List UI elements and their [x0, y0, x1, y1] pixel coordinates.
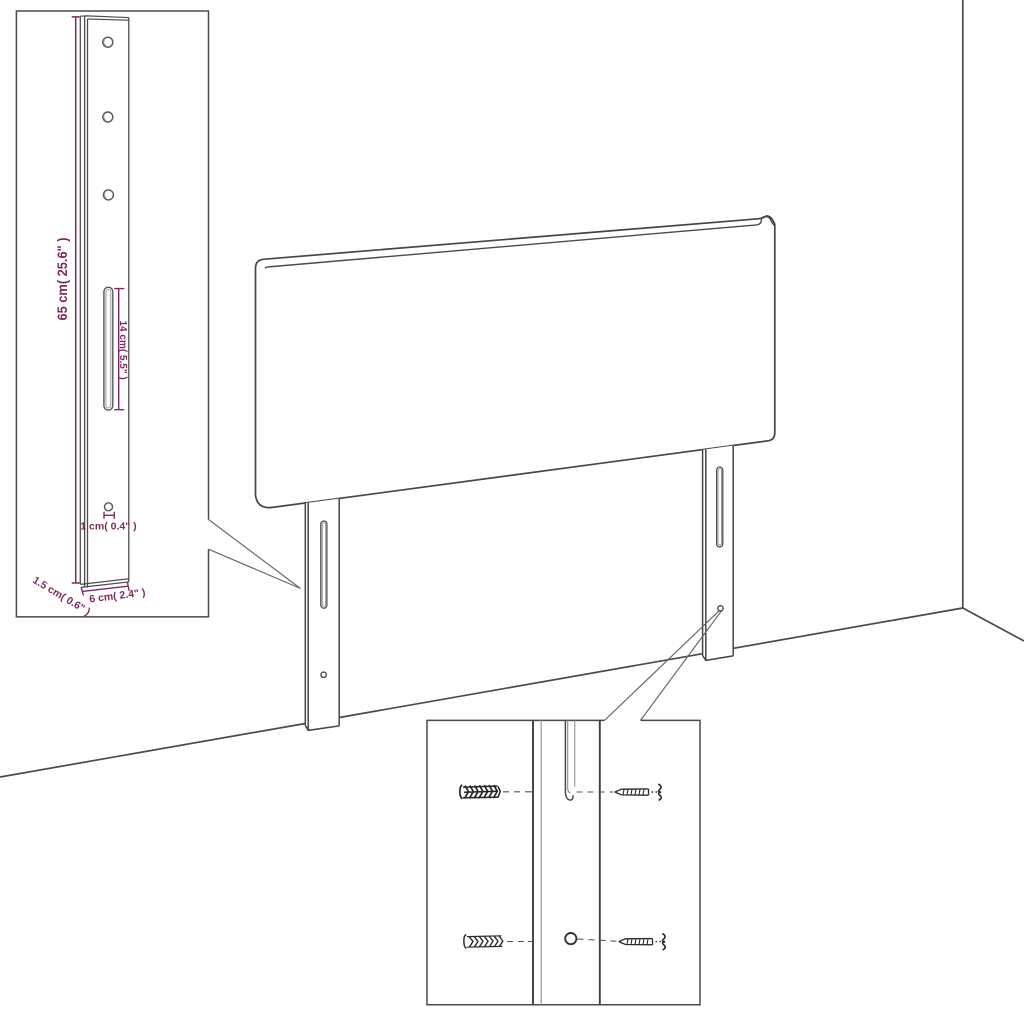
svg-text:14 cm( 5.5" ): 14 cm( 5.5" )	[117, 320, 128, 379]
svg-text:1 cm( 0.4" ): 1 cm( 0.4" )	[80, 521, 136, 533]
svg-text:65 cm( 25.6" ): 65 cm( 25.6" )	[54, 238, 70, 321]
